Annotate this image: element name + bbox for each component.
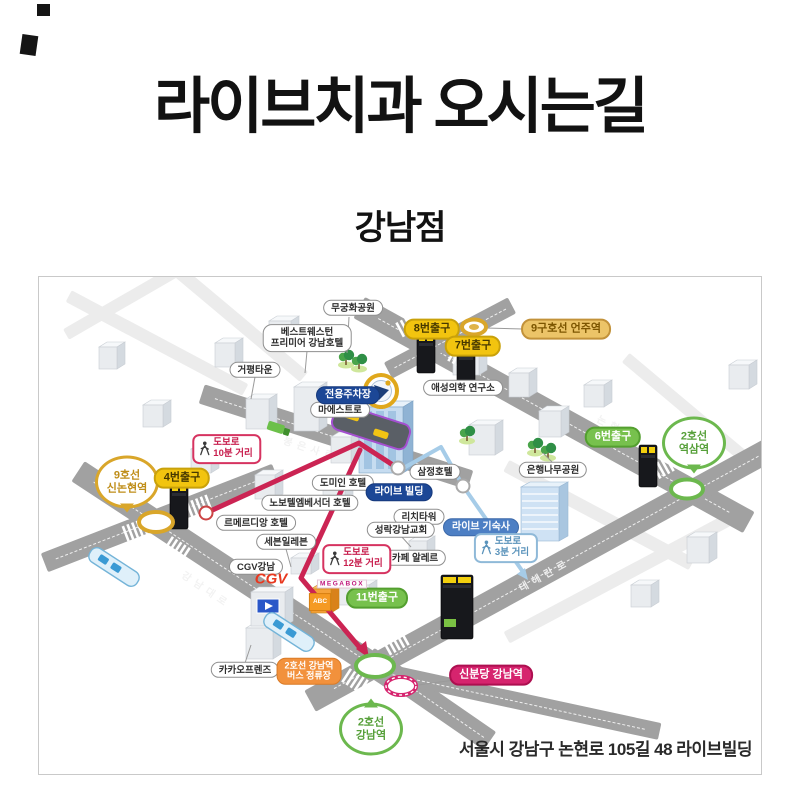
truck — [266, 421, 291, 437]
station-badge-eonju: 9구호선 언주역 — [521, 319, 611, 340]
map-canvas: 서울시 강남구 논현로 105길 48 라이브빌딩 논현로봉은사로강남대로테헤란… — [39, 277, 761, 774]
building — [469, 420, 503, 455]
leader-line — [486, 328, 523, 329]
building — [539, 406, 569, 437]
landmark-label-best-western: 베스트웨스턴프리미어 강남호텔 — [263, 324, 352, 352]
building — [143, 400, 171, 427]
page-title: 라이브치과 오시는길 — [0, 56, 800, 145]
building — [687, 532, 717, 563]
station-oval-sinnonhyeon — [139, 512, 173, 532]
station-badge-sinbundang-gangnam: 신분당 강남역 — [449, 665, 533, 686]
crosswalk — [383, 631, 408, 655]
route-node — [200, 507, 213, 520]
landmark-label-novotel: 노보텔엠베서더 호텔 — [261, 495, 358, 511]
exit-badge-exit-11: 11번출구 — [346, 588, 408, 609]
station-balloon-yeoksam: 2호선역삼역 — [662, 417, 726, 470]
clinic-address: 서울시 강남구 논현로 105길 48 라이브빌딩 — [459, 735, 752, 760]
building — [99, 342, 125, 369]
station-balloon-gangnam: 2호선강남역 — [339, 703, 403, 756]
station-balloon-sinnonhyeon: 9호선신논현역 — [95, 456, 159, 509]
tree — [459, 426, 475, 445]
walking-person-icon — [329, 552, 340, 567]
landmark-label-ginkgo-park: 은행나무공원 — [519, 462, 587, 478]
landmark-label-cafe-allere: 카페 알레르 — [384, 550, 446, 566]
crop-artifact — [20, 34, 39, 56]
landmark-label-samjung-hotel: 삼정호텔 — [410, 464, 461, 480]
walking-person-icon — [199, 442, 210, 457]
map-frame: 서울시 강남구 논현로 105길 48 라이브빌딩 논현로봉은사로강남대로테헤란… — [38, 276, 762, 775]
walking-person-icon — [481, 541, 492, 556]
bus-stop — [86, 545, 142, 589]
landmark-label-aeseong-lab: 애성의학 연구소 — [423, 380, 503, 396]
sign-megabox: MEGABOX — [317, 580, 367, 589]
leader-line — [286, 549, 291, 567]
building — [584, 380, 612, 407]
walk-label-walk-10: 도보로10분 거리 — [192, 434, 261, 464]
landmark-label-dormy-inn: 도미인 호텔 — [312, 475, 374, 491]
landmark-label-seongnak-church: 성락강남교회 — [367, 522, 435, 538]
landmark-label-le-meridien: 르메르디앙 호텔 — [216, 515, 296, 531]
tree — [338, 350, 354, 369]
exit-badge-exit-4: 4번출구 — [154, 468, 210, 489]
leader-line — [305, 351, 307, 373]
page-subtitle: 강남점 — [0, 200, 800, 249]
destination-badge-live-building: 라이브 빌딩 — [366, 483, 433, 501]
route-node — [392, 462, 405, 475]
landmark-label-gangnam-bus-stop: 2호선 강남역버스 정류장 — [277, 658, 342, 685]
building — [729, 360, 757, 389]
walk-label-walk-12: 도보로12분 거리 — [322, 544, 391, 574]
station-oval-yeoksam — [671, 480, 703, 499]
tree — [527, 438, 543, 457]
exit-badge-exit-6: 6번출구 — [585, 427, 641, 448]
crosswalk — [164, 537, 189, 561]
landmark-label-mugunghwa-park: 무궁화공원 — [323, 300, 383, 316]
crop-artifact — [37, 4, 50, 16]
subway-exit-pillar — [441, 575, 473, 639]
station-oval-gangnam — [356, 655, 394, 677]
subway-exit-pillar — [639, 445, 657, 487]
exit-badge-exit-7: 7번출구 — [445, 336, 501, 357]
landmark-label-kakao-friends: 카카오프렌즈 — [211, 662, 279, 678]
building — [509, 368, 537, 397]
sign-abc-mart: ABC — [309, 593, 331, 611]
sign-cgv-logo: CGV — [255, 571, 288, 588]
landmark-label-maestro: 마에스트로 — [310, 402, 370, 418]
station-oval-mark — [469, 324, 479, 330]
building — [631, 580, 659, 607]
route-node — [457, 480, 470, 493]
landmark-label-seven-eleven: 세븐일레븐 — [256, 534, 316, 550]
walk-label-walk-3: 도보로3분 거리 — [474, 533, 538, 563]
landmark-label-geopyeong-town: 거평타운 — [230, 362, 281, 378]
destination-badge-parking: 전용주차장 — [316, 386, 380, 404]
